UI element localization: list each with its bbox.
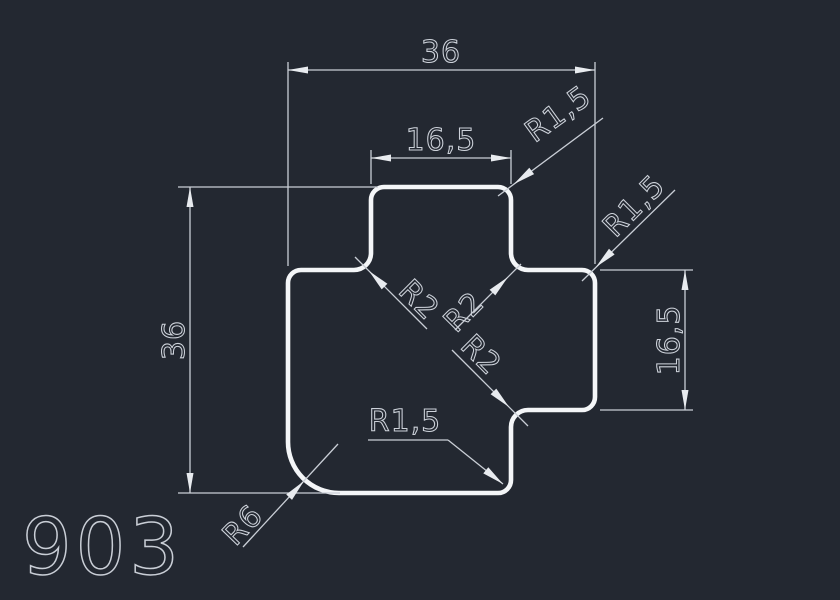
dim-overall-width-label: 36 — [421, 35, 461, 70]
radius-bottom-step-label: R1,5 — [369, 404, 442, 439]
dim-top-tab-width-label: 16,5 — [406, 123, 477, 158]
arrowhead-top — [682, 270, 689, 290]
leader-fillet-left-notch: R2 — [355, 257, 446, 329]
arrowhead-right — [575, 67, 595, 74]
fillet-left-notch-label: R2 — [392, 273, 446, 327]
arrowhead-left — [371, 155, 391, 162]
leader-radius-bottom-left: R6 — [216, 444, 338, 553]
radius-top-tab-label: R1,5 — [519, 79, 598, 150]
dim-top-tab-width: 16,5 — [371, 123, 511, 184]
profile-outline — [288, 187, 595, 493]
arrowhead-left — [288, 67, 308, 74]
dim-overall-height: 36 — [157, 187, 378, 493]
leader-arrowhead — [514, 168, 534, 184]
leader-arrowhead — [483, 467, 503, 484]
profile — [288, 187, 595, 493]
dim-overall-height-label: 36 — [157, 320, 192, 360]
cad-drawing: 36 16,5 36 16,5 — [0, 0, 840, 600]
fillet-upper-notch-label: R2 — [437, 285, 491, 339]
leader-radius-top-tab: R1,5 — [498, 79, 603, 196]
leader-fillet-lower-notch: R2 — [452, 328, 528, 426]
radius-bottom-left-label: R6 — [216, 498, 270, 552]
dim-right-tab-height: 16,5 — [600, 270, 693, 410]
leader-radius-bottom-step: R1,5 — [368, 404, 503, 484]
arrowhead-top — [187, 187, 194, 207]
leader-radius-right-tab: R1,5 — [582, 168, 675, 281]
arrowhead-right — [491, 155, 511, 162]
dim-right-tab-height-label: 16,5 — [652, 305, 687, 376]
arrowhead-bottom — [682, 390, 689, 410]
cad-drawing-canvas: 36 16,5 36 16,5 — [0, 0, 840, 600]
part-number: 903 — [22, 503, 183, 593]
arrowhead-bottom — [187, 473, 194, 493]
radius-right-tab-label: R1,5 — [596, 168, 672, 244]
